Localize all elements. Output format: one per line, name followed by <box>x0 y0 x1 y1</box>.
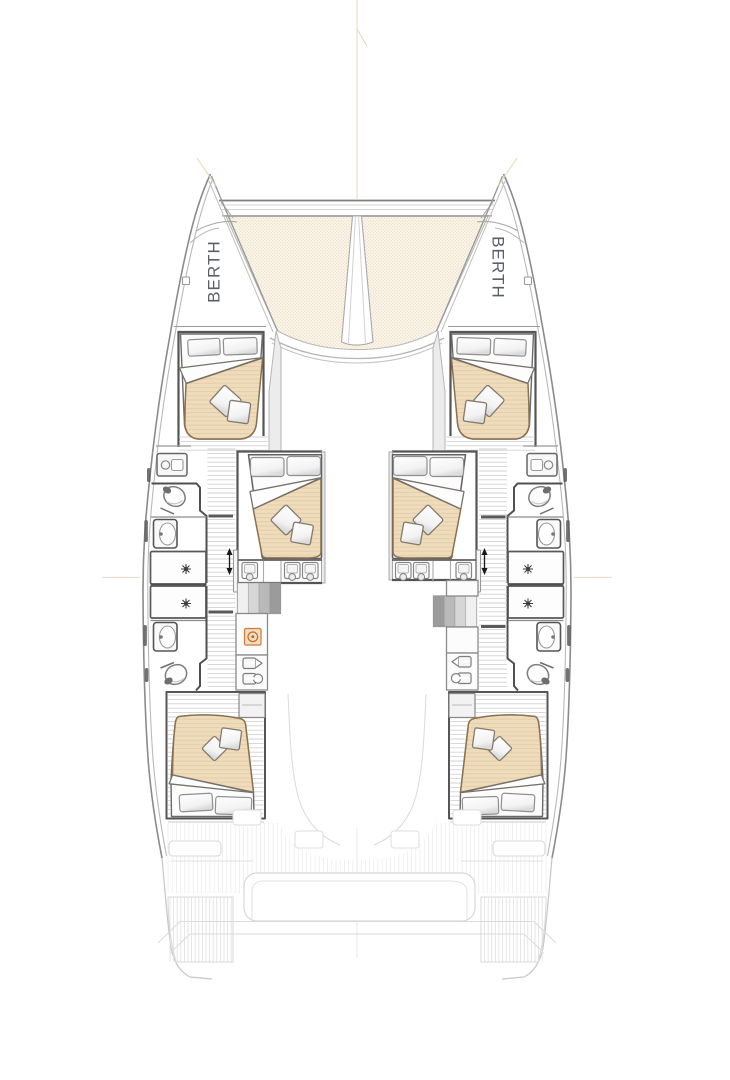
svg-text:BERTH: BERTH <box>204 240 223 303</box>
svg-text:BERTH: BERTH <box>489 236 508 299</box>
